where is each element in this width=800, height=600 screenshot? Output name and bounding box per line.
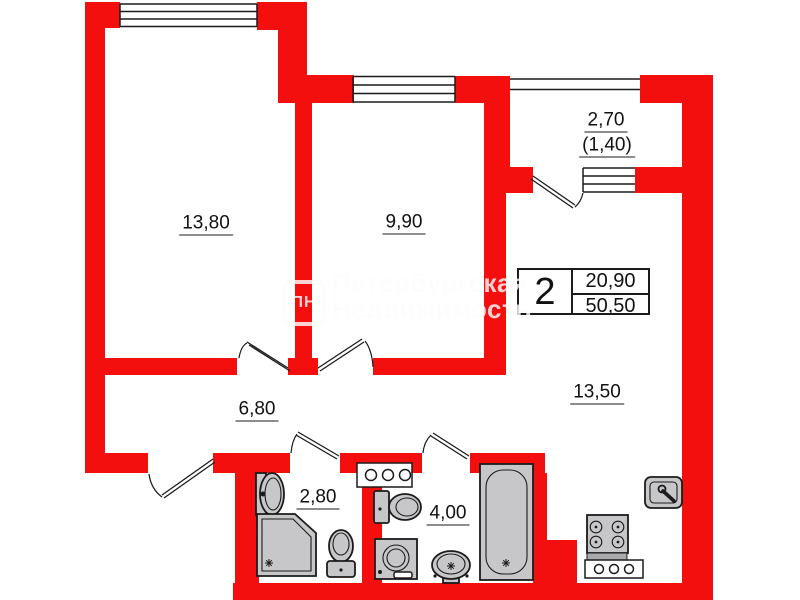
door-room-1	[239, 342, 290, 371]
room-2-area-label: 9,90	[383, 212, 426, 235]
wc-area-label: 4,00	[427, 503, 470, 526]
door-bathroom	[291, 432, 339, 459]
apartment-info-box: 2 20,90 50,50	[517, 268, 650, 315]
shower-icon	[257, 514, 316, 576]
bathtub-icon	[480, 464, 533, 580]
stove-icon	[587, 515, 628, 560]
balcony-area-label: 2,70	[585, 110, 628, 133]
window-balcony	[583, 168, 635, 192]
kitchen-sink-icon	[645, 477, 682, 508]
watermark-logo: ПН	[282, 280, 326, 326]
vent-box-icon	[357, 463, 412, 487]
toilet-icon	[327, 530, 355, 577]
door-balcony	[531, 176, 583, 208]
bathroom-area-label: 2,80	[297, 487, 340, 510]
door-wc	[423, 433, 469, 459]
washing-machine-icon	[375, 539, 417, 579]
total-area: 50,50	[573, 295, 648, 318]
door-room-2	[318, 339, 373, 371]
door-entrance	[149, 459, 215, 498]
watermark-text: Петербургская Недвижимость	[332, 270, 532, 322]
wall-sink-icon	[256, 473, 284, 515]
pedestal-sink-icon	[432, 551, 470, 583]
window-room-2	[353, 77, 455, 103]
living-area: 20,90	[573, 270, 648, 295]
balcony-railing	[510, 79, 640, 90]
floor-plan: 13,80 9,90 2,70 (1,40) 6,80 2,80 4,00 13…	[0, 0, 800, 600]
watermark-line-1: Петербургская	[332, 270, 532, 296]
balcony-reduced-area-label: (1,40)	[579, 135, 635, 158]
kitchen-counter-icon	[585, 560, 643, 578]
hallway-area-label: 6,80	[236, 399, 279, 422]
room-1-area-label: 13,80	[179, 213, 233, 236]
watermark-line-2: Недвижимость	[332, 296, 532, 322]
toilet-2-icon	[374, 491, 421, 523]
window-room-1	[120, 4, 257, 27]
kitchen-living-area-label: 13,50	[570, 382, 624, 405]
